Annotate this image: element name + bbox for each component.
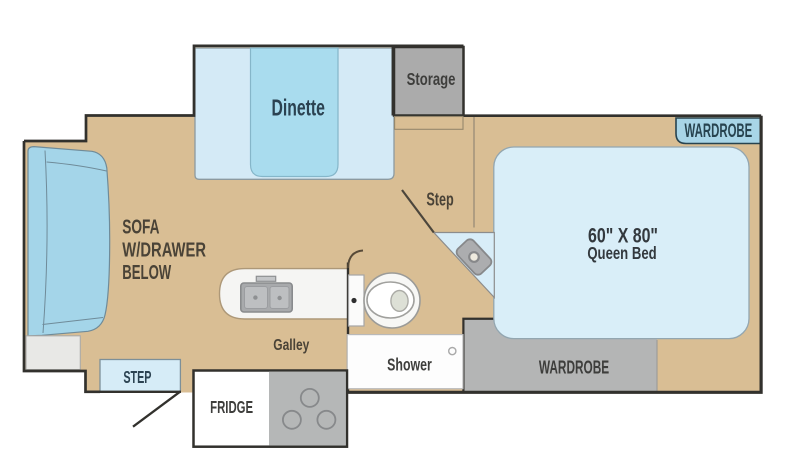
svg-text:WARDROBE: WARDROBE (685, 121, 753, 142)
svg-text:Storage: Storage (407, 70, 456, 89)
svg-text:FRIDGE: FRIDGE (210, 397, 253, 417)
svg-text:Shower: Shower (387, 355, 432, 375)
svg-text:SOFA: SOFA (122, 215, 159, 238)
svg-text:Queen Bed: Queen Bed (587, 244, 656, 263)
svg-text:W/DRAWER: W/DRAWER (122, 239, 206, 262)
svg-text:Dinette: Dinette (271, 96, 324, 122)
svg-text:Galley: Galley (273, 335, 309, 353)
svg-text:WARDROBE: WARDROBE (539, 358, 609, 378)
svg-text:STEP: STEP (123, 368, 151, 387)
svg-text:Step: Step (426, 191, 453, 211)
svg-text:BELOW: BELOW (122, 261, 171, 283)
